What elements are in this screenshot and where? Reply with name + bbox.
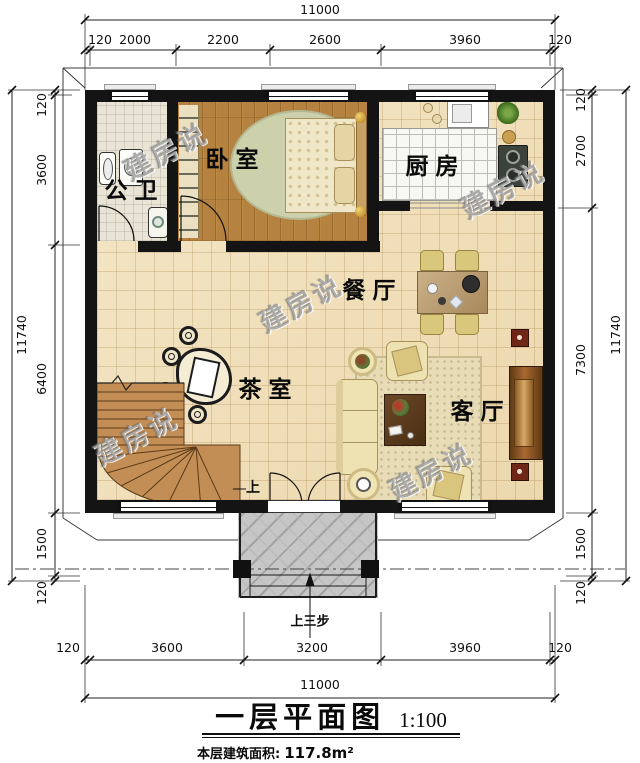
side-table-rings bbox=[356, 477, 371, 492]
entrance-opening bbox=[268, 500, 340, 513]
window-sill bbox=[113, 513, 224, 519]
dining-chair bbox=[455, 314, 479, 335]
wall-kitchen-dining-seg bbox=[379, 201, 410, 211]
kitchen-sink-basin bbox=[452, 104, 472, 123]
stairs-up-label: 上 bbox=[246, 477, 260, 497]
room-label-living: 客厅 bbox=[444, 392, 511, 426]
wall-bottom-seg bbox=[85, 500, 117, 513]
wall-bottom-seg bbox=[340, 500, 398, 513]
dining-plate bbox=[427, 283, 438, 294]
room-label-dining: 餐厅 bbox=[336, 271, 403, 305]
dim-right-seg: 7300 bbox=[575, 344, 588, 376]
title-block: 一层平面图 1:100 bbox=[200, 694, 462, 736]
dim-top-seg: 2200 bbox=[207, 34, 239, 47]
kitchen-window bbox=[412, 90, 492, 102]
dim-right-seg: 2700 bbox=[575, 135, 588, 167]
wall-bedroom-hall-seg bbox=[226, 241, 380, 252]
washing-machine-drum bbox=[152, 216, 164, 228]
porch-column bbox=[361, 560, 379, 578]
room-label-kitchen: 厨房 bbox=[399, 147, 466, 181]
wall-bedroom-kitchen bbox=[367, 102, 379, 252]
dim-left-seg: 120 bbox=[36, 581, 49, 605]
sofa-long bbox=[336, 379, 378, 475]
kitchen-bowl bbox=[432, 114, 442, 124]
bed-pillow bbox=[334, 124, 355, 161]
speaker-dot bbox=[517, 469, 522, 474]
coffee-table-cup bbox=[407, 432, 414, 439]
dim-left-seg: 120 bbox=[36, 93, 49, 117]
tea-stool bbox=[188, 405, 207, 424]
speaker-dot bbox=[517, 335, 522, 340]
kitchen-bowl bbox=[423, 103, 433, 113]
dining-chair bbox=[455, 250, 479, 271]
dining-chair bbox=[420, 314, 444, 335]
plant-pot bbox=[502, 130, 516, 144]
dim-top-seg: 120 bbox=[88, 34, 112, 47]
floor-plan: 公卫 卧室 厨房 餐厅 茶室 客厅 上 上三步 11000 120 2000 2… bbox=[0, 0, 640, 763]
dim-bottom-seg: 120 bbox=[548, 642, 572, 655]
porch-column bbox=[233, 560, 251, 578]
sofa-divider bbox=[343, 442, 377, 443]
tea-stool bbox=[179, 326, 198, 345]
bed-headboard bbox=[356, 114, 367, 216]
dim-top-seg: 3960 bbox=[449, 34, 481, 47]
plan-title: 一层平面图 bbox=[215, 694, 385, 736]
bed-post-knob bbox=[355, 112, 366, 123]
area-row: 本层建筑面积: 117.8m² bbox=[197, 743, 354, 762]
dim-top-seg: 2600 bbox=[309, 34, 341, 47]
dim-right-seg: 1500 bbox=[575, 528, 588, 560]
wall-bedroom-hall-seg bbox=[138, 241, 181, 252]
dim-top-total: 11000 bbox=[300, 4, 340, 17]
dim-bottom-seg: 3200 bbox=[296, 642, 328, 655]
title-underline bbox=[202, 733, 460, 738]
dining-chair bbox=[420, 250, 444, 271]
entrance-steps-label: 上三步 bbox=[290, 611, 329, 630]
window-sill bbox=[394, 513, 496, 519]
dim-top-seg: 120 bbox=[548, 34, 572, 47]
tv-screen bbox=[514, 379, 534, 447]
wall-bottom-seg bbox=[220, 500, 268, 513]
dim-bottom-total: 11000 bbox=[300, 679, 340, 692]
porch-floor bbox=[238, 513, 378, 598]
living-window bbox=[398, 500, 492, 513]
dining-plate-large bbox=[462, 275, 480, 293]
dim-bottom-seg: 120 bbox=[56, 642, 80, 655]
side-table-plant bbox=[355, 354, 370, 369]
tea-stool bbox=[162, 347, 181, 366]
bed-pillow bbox=[334, 167, 355, 204]
dim-left-seg: 1500 bbox=[36, 528, 49, 560]
room-label-tea-room: 茶室 bbox=[232, 370, 299, 404]
wall-right bbox=[543, 90, 555, 513]
plant bbox=[497, 102, 519, 124]
dim-left-seg: 6400 bbox=[36, 363, 49, 395]
dim-right-total: 11740 bbox=[610, 315, 623, 355]
dim-right-seg: 120 bbox=[575, 581, 588, 605]
bathroom-window bbox=[108, 90, 152, 102]
dim-left-seg: 3600 bbox=[36, 154, 49, 186]
plan-scale: 1:100 bbox=[399, 708, 447, 733]
dim-right-seg: 120 bbox=[575, 88, 588, 112]
dining-plate-small bbox=[438, 297, 446, 305]
sofa-divider bbox=[343, 410, 377, 411]
stair-window bbox=[117, 500, 220, 513]
dim-bottom-seg: 3960 bbox=[449, 642, 481, 655]
coffee-table-flowers bbox=[392, 399, 409, 416]
bedroom-window bbox=[265, 90, 352, 102]
area-label: 本层建筑面积: bbox=[197, 743, 280, 762]
dim-bottom-seg: 3600 bbox=[151, 642, 183, 655]
dim-top-seg: 2000 bbox=[119, 34, 151, 47]
bed-post-knob bbox=[355, 206, 366, 217]
dim-left-total: 11740 bbox=[16, 315, 29, 355]
wall-bottom-seg bbox=[492, 500, 555, 513]
area-value: 117.8m² bbox=[284, 744, 354, 762]
